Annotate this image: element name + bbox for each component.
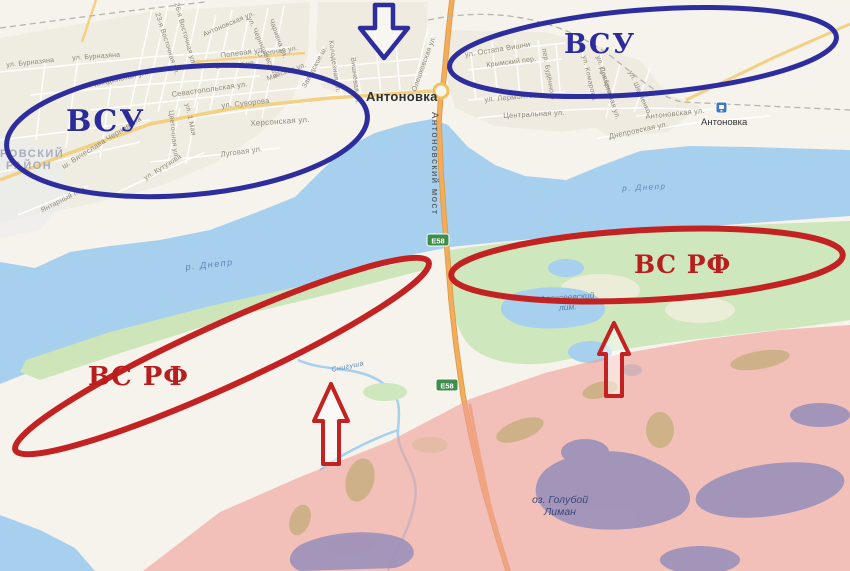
- blue-arrow-down-icon: [360, 5, 408, 58]
- red-arrow-up-center-icon: [314, 384, 348, 464]
- red-ellipse-left: [3, 234, 442, 479]
- annotation-overlay: [0, 0, 850, 571]
- blue-ellipse-right: [446, 0, 839, 109]
- red-arrow-up-right-icon: [599, 323, 629, 396]
- vsu-label-left: ВСУ: [66, 104, 146, 139]
- vsu-label-right: ВСУ: [564, 29, 636, 60]
- vsrf-label-left: ВС РФ: [88, 362, 189, 392]
- blue-ellipse-left: [1, 51, 373, 210]
- vsrf-label-right: ВС РФ: [634, 250, 731, 279]
- annotated-map: E58 E58 ул. Бурназяна ул. Бурназяна 23-я…: [0, 0, 850, 571]
